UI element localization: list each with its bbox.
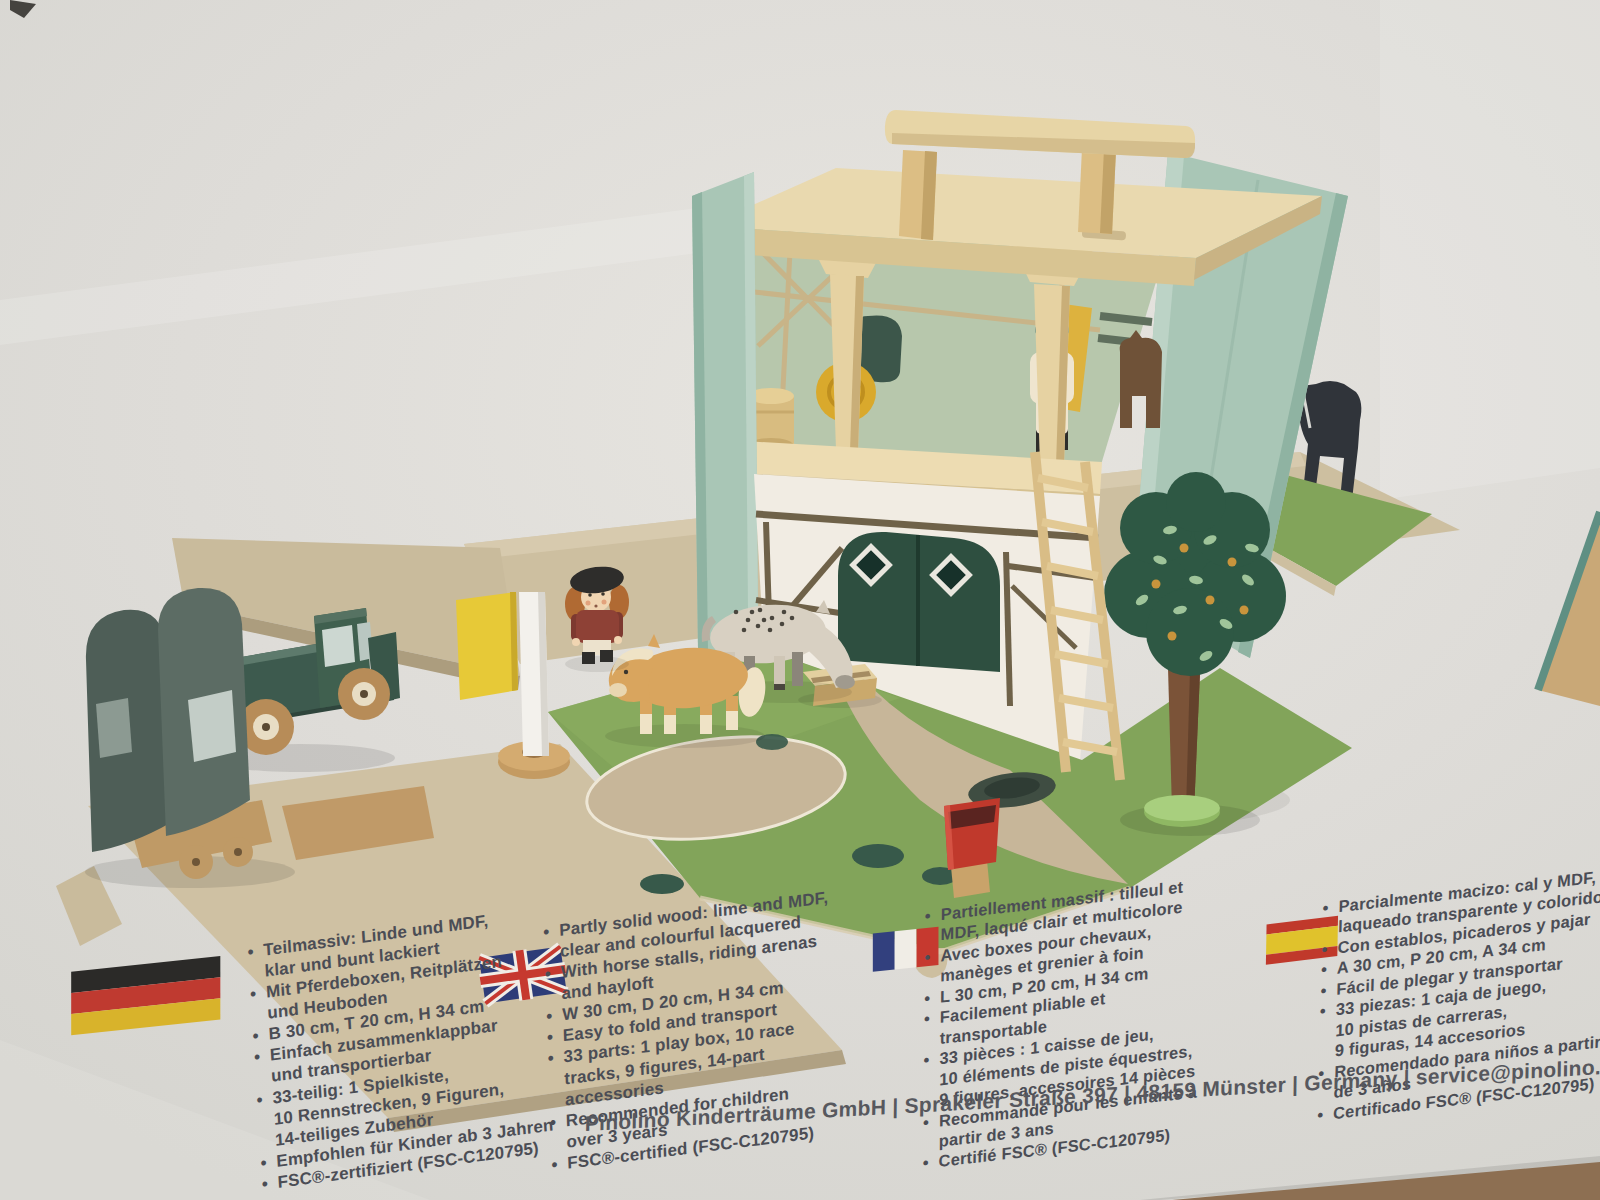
info-column-fr: Partiellement massif : tilleul et MDF, l…	[922, 868, 1262, 1174]
feature-list-fr: Partiellement massif : tilleul et MDF, l…	[922, 868, 1262, 1174]
packaging-photo: Teilmassiv: Linde und MDF, klar und bunt…	[0, 0, 1600, 1200]
printed-text-layer: Teilmassiv: Linde und MDF, klar und bunt…	[0, 0, 1600, 1200]
flag-germany-icon	[54, 946, 240, 1046]
